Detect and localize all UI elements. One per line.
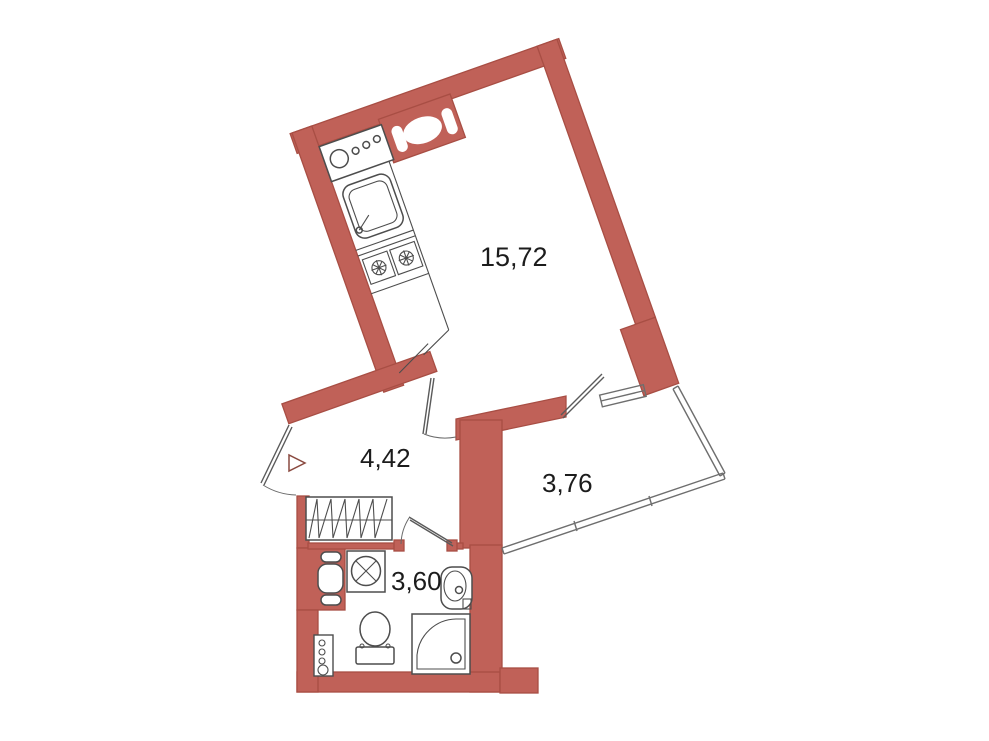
door-jamb-left: [394, 540, 404, 551]
room-label-bathroom: 3,60: [391, 566, 442, 596]
wall-bathroom-north-west: [308, 543, 400, 549]
plumbing-riser-icon: [314, 635, 333, 676]
washing-machine-icon: [347, 551, 385, 592]
loggia-glazing-east: [673, 386, 725, 476]
toilet-icon: [356, 612, 394, 664]
room-label-hallway: 4,42: [360, 443, 411, 473]
main-block: [198, 39, 681, 511]
floor-plan-svg: 15,72 4,42 3,76 3,60: [0, 0, 989, 741]
loggia-glazing-south: [502, 473, 725, 554]
wall-right: [537, 39, 655, 324]
entrance-arrow-icon: [289, 455, 305, 471]
floor-plan: 15,72 4,42 3,76 3,60: [0, 0, 989, 741]
shower-tray-icon: [412, 614, 470, 674]
wall-bathroom-east: [470, 545, 502, 692]
room-label-loggia: 3,76: [542, 468, 593, 498]
bathroom-door: [401, 517, 453, 546]
entrance-door: [261, 425, 305, 495]
wardrobe-icon: [306, 497, 392, 540]
cooktop-icon: [362, 241, 423, 284]
wall-hallway-east: [460, 420, 502, 548]
living-room-door: [423, 378, 456, 438]
window-living-to-loggia: [600, 385, 647, 407]
wall-pier: [620, 317, 678, 395]
wall-step: [500, 668, 538, 693]
wall-hallway-north: [282, 352, 437, 424]
balcony-door: [561, 374, 604, 418]
towel-dryer-icon: [318, 552, 343, 605]
wash-basin-icon: [441, 567, 472, 609]
room-label-living: 15,72: [480, 242, 548, 272]
